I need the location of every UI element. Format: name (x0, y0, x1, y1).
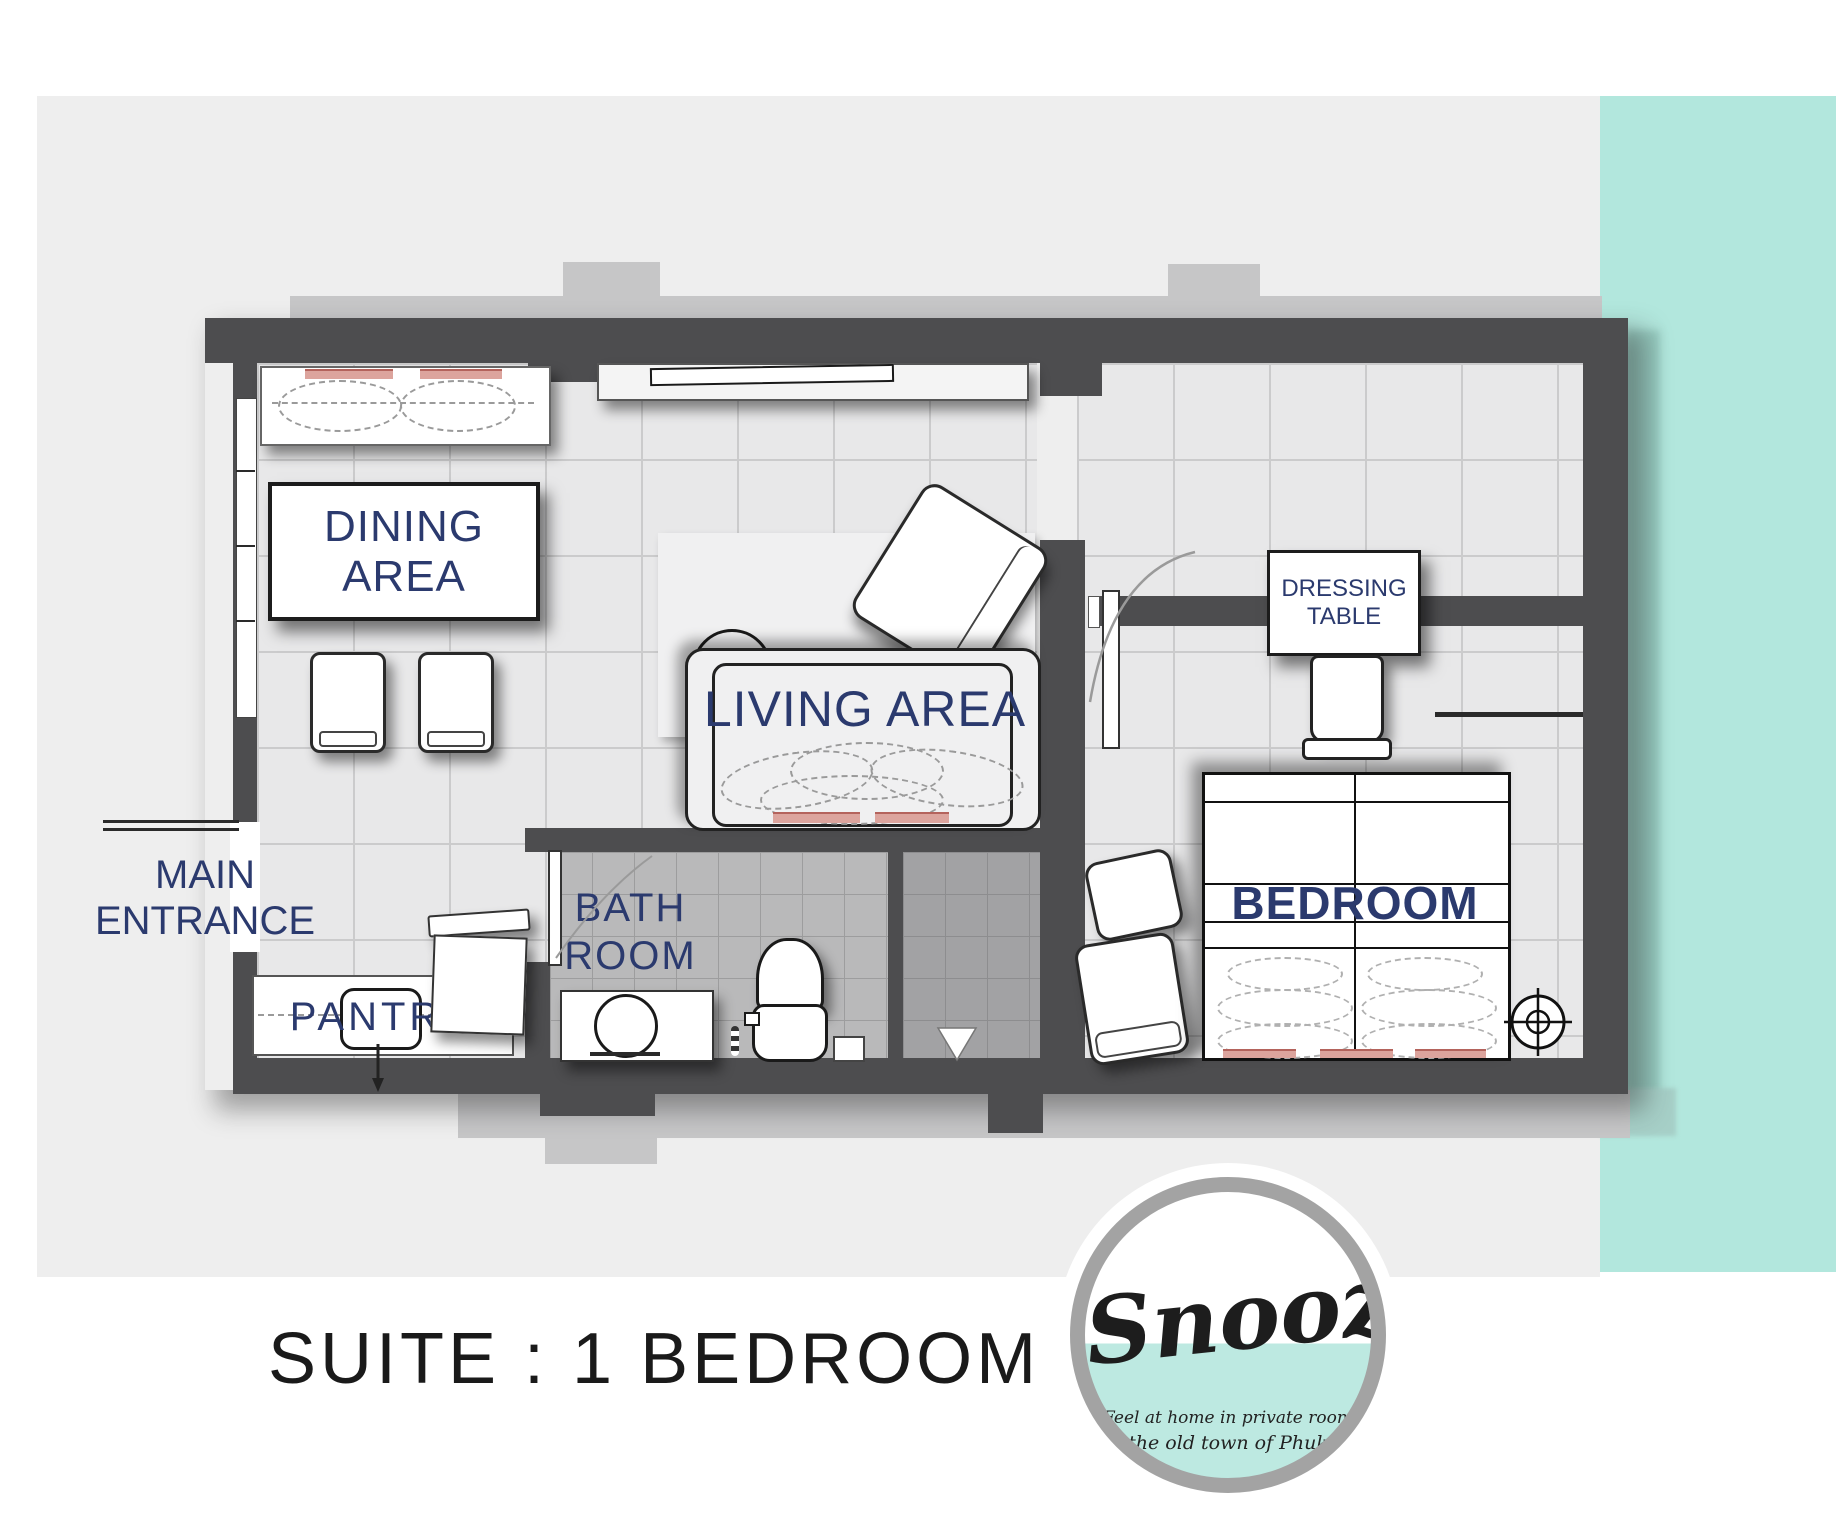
wall-shower-divider (888, 845, 903, 1058)
wall-dressing-jamb (1088, 596, 1100, 628)
logo-tagline-line2: at the old town of Phuket. (1085, 1432, 1371, 1454)
bed-pillow-1 (1227, 957, 1343, 991)
main-entrance-label-line1: MAIN (80, 852, 330, 898)
column-bottom-center (988, 1085, 1043, 1133)
column-bottom-left (540, 1090, 655, 1116)
wall-bottom (233, 1058, 1628, 1094)
bed-runner-3 (1415, 1049, 1486, 1058)
sofa-cushion-2 (875, 812, 949, 823)
bathroom-bin (833, 1036, 865, 1062)
vanity-front-line (590, 1052, 660, 1056)
bedroom-label: BEDROOM (1215, 876, 1495, 930)
window-mullion-2 (236, 545, 255, 547)
console-cushion-2 (420, 369, 502, 379)
bed-pillow-3 (1217, 989, 1353, 1027)
wardrobe-rail-line (1435, 712, 1583, 717)
teal-shadow-strip (1626, 330, 1660, 1130)
logo-tagline-line1: Feel at home in private room (1085, 1408, 1371, 1428)
entrance-line-2 (103, 828, 239, 831)
bed-line-3 (1205, 947, 1508, 949)
console-dashed-line (272, 402, 534, 404)
slab-top (290, 296, 1602, 320)
column-top-center (1040, 318, 1102, 396)
dressing-table-label-line1: DRESSING (1281, 575, 1406, 603)
living-area-label: LIVING AREA (700, 680, 1030, 738)
slab-top-bump-right (1168, 264, 1260, 298)
bedroom-armchair-seat (1073, 931, 1191, 1067)
logo-brand-text: Snoozy (1080, 1249, 1376, 1386)
page-title: SUITE : 1 BEDROOM (268, 1318, 1040, 1400)
bed-pillow-4 (1361, 989, 1497, 1027)
bed-pillow-2 (1367, 957, 1483, 991)
main-entrance-label: MAIN ENTRANCE (80, 852, 330, 944)
toilet-bowl (752, 1004, 828, 1062)
dining-area-label-box: DINING AREA (268, 482, 540, 621)
sofa-cushion-1 (773, 812, 860, 823)
floor-shower (903, 852, 1040, 1058)
console-cushion-1 (305, 369, 393, 379)
bedroom-door-panel (1102, 590, 1120, 749)
main-entrance-label-line2: ENTRANCE (80, 898, 330, 944)
bathroom-label: BATH ROOM (538, 884, 723, 980)
window-mullion-3 (236, 620, 255, 622)
dining-chair-2 (418, 652, 494, 753)
slab-top-bump-left (563, 262, 660, 298)
toilet-tank (756, 938, 824, 1012)
floor-plan-poster: PANTRY DRESSING TABLE DINING (0, 0, 1836, 1529)
dining-chair-1 (310, 652, 386, 753)
wall-right (1583, 318, 1628, 1094)
console-leaf-1 (278, 380, 402, 432)
wall-top (205, 318, 1628, 363)
entrance-line-1 (103, 820, 239, 823)
snoozy-logo: Snoozy Feel at home in private room at t… (1070, 1177, 1386, 1493)
bed-runner-1 (1223, 1049, 1296, 1058)
dressing-stool (1310, 655, 1384, 743)
wall-bathroom-top (525, 828, 1077, 852)
dining-area-label-line2: AREA (342, 552, 466, 602)
dressing-stool-base (1302, 738, 1392, 760)
dining-area-label-line1: DINING (324, 502, 484, 552)
bathroom-label-line2: ROOM (538, 932, 723, 980)
window-mullion-1 (236, 470, 255, 472)
bathroom-label-line1: BATH (538, 884, 723, 932)
vanity-basin (594, 994, 658, 1058)
dressing-table-label-line2: TABLE (1307, 603, 1381, 631)
bed-runner-2 (1320, 1049, 1393, 1058)
window-left-wall (236, 398, 257, 718)
toilet-flush-knob (744, 1012, 760, 1026)
dressing-table-label-box: DRESSING TABLE (1267, 550, 1421, 656)
bed-headboard-line (1205, 801, 1508, 803)
console-leaf-2 (400, 380, 516, 432)
bathroom-accessory-dots (731, 1026, 739, 1056)
slab-bottom-bump (545, 1136, 657, 1164)
luggage-bench-body (430, 934, 527, 1035)
